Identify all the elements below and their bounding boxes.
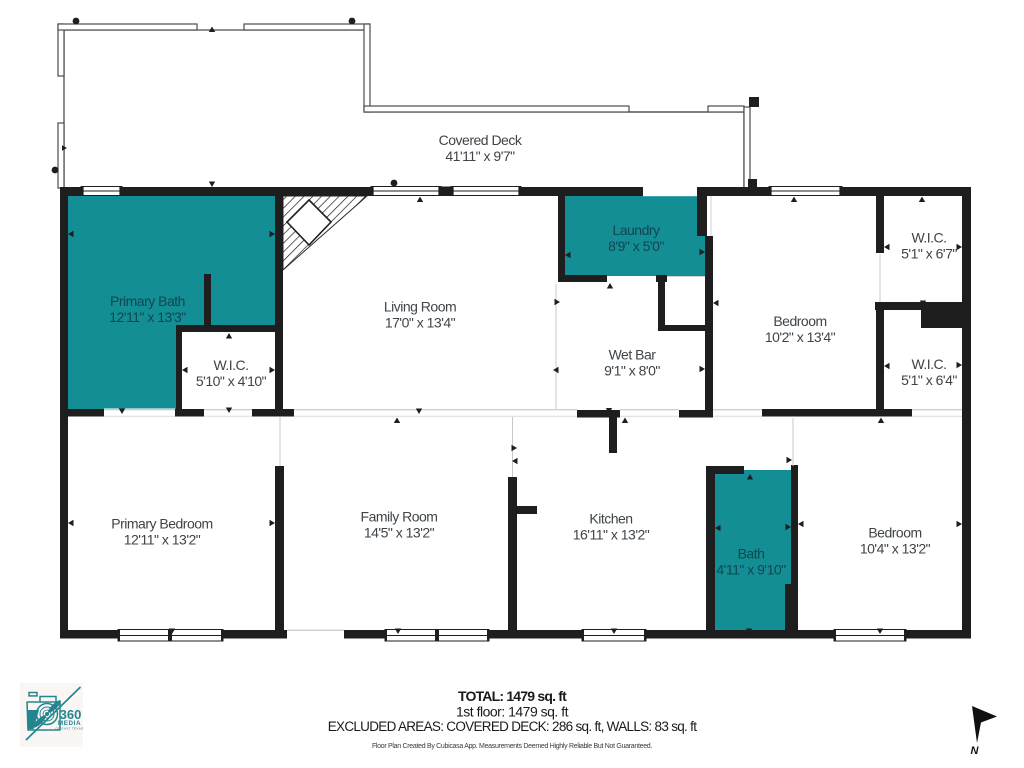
svg-text:Bath: Bath xyxy=(738,546,765,562)
svg-text:Living Room: Living Room xyxy=(384,299,456,315)
svg-text:Bedroom: Bedroom xyxy=(773,313,826,329)
svg-text:16'11" x 13'2": 16'11" x 13'2" xyxy=(573,527,650,543)
svg-text:10'2" x 13'4": 10'2" x 13'4" xyxy=(765,329,836,345)
svg-text:N: N xyxy=(971,745,980,757)
svg-text:5'1" x 6'4": 5'1" x 6'4" xyxy=(901,372,957,388)
svg-text:4'11" x 9'10": 4'11" x 9'10" xyxy=(716,562,786,578)
svg-text:W.I.C.: W.I.C. xyxy=(911,356,946,372)
svg-text:10'4" x 13'2": 10'4" x 13'2" xyxy=(860,541,931,557)
svg-text:Family Room: Family Room xyxy=(361,509,438,525)
svg-text:1st floor: 1479 sq. ft: 1st floor: 1479 sq. ft xyxy=(456,704,569,720)
svg-text:5'10" x 4'10": 5'10" x 4'10" xyxy=(196,373,267,389)
svg-text:17'0" x 13'4": 17'0" x 13'4" xyxy=(385,315,456,331)
svg-text:OF EAST TEXAS: OF EAST TEXAS xyxy=(55,727,83,731)
svg-text:Floor Plan Created By Cubicasa: Floor Plan Created By Cubicasa App. Meas… xyxy=(372,743,652,750)
svg-text:Primary Bedroom: Primary Bedroom xyxy=(111,516,212,532)
svg-text:12'11" x 13'3": 12'11" x 13'3" xyxy=(109,309,186,325)
svg-text:8'9" x 5'0": 8'9" x 5'0" xyxy=(608,238,664,254)
svg-text:Bedroom: Bedroom xyxy=(868,525,921,541)
svg-text:12'11" x 13'2": 12'11" x 13'2" xyxy=(124,532,201,548)
svg-text:W.I.C.: W.I.C. xyxy=(911,230,946,246)
svg-text:9'1" x 8'0": 9'1" x 8'0" xyxy=(604,363,660,379)
svg-text:Wet Bar: Wet Bar xyxy=(609,347,657,363)
svg-text:5'1" x 6'7": 5'1" x 6'7" xyxy=(901,246,957,262)
svg-text:Kitchen: Kitchen xyxy=(589,511,632,527)
svg-text:Laundry: Laundry xyxy=(612,222,660,238)
svg-text:EXCLUDED AREAS: COVERED DECK:: EXCLUDED AREAS: COVERED DECK: 286 sq. ft… xyxy=(328,719,697,734)
svg-text:W.I.C.: W.I.C. xyxy=(213,357,248,373)
svg-text:Covered Deck: Covered Deck xyxy=(439,132,523,148)
svg-text:TOTAL: 1479 sq. ft: TOTAL: 1479 sq. ft xyxy=(458,688,567,704)
svg-text:41'11" x 9'7": 41'11" x 9'7" xyxy=(445,148,515,164)
svg-text:14'5" x 13'2": 14'5" x 13'2" xyxy=(364,525,435,541)
svg-text:Primary Bath: Primary Bath xyxy=(110,293,185,309)
